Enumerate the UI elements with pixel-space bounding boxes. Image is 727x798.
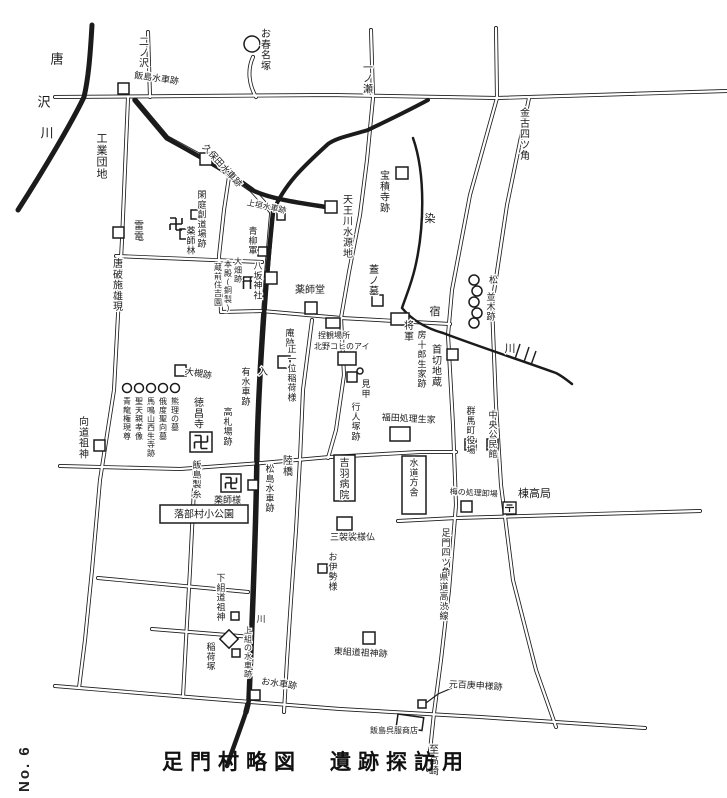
building-marker [118,83,129,94]
map-label: 薬師林 [186,225,195,255]
road-casing [428,98,497,770]
building-marker [326,318,340,328]
road-core [183,468,195,697]
map-label: 足門四ツ角 [441,528,450,577]
map-label: 一ノ瀬 [363,63,373,96]
building-marker [390,427,410,441]
road-core [55,686,645,728]
map-label: 見甲 [361,379,370,399]
road-casing [79,98,128,688]
building-marker [318,564,327,573]
building-marker [338,352,356,365]
roads-core-layer [55,28,727,770]
map-label: 宿 [430,304,441,318]
map-label: 三袈裟様仏 [330,531,375,542]
map-label: 川 [256,614,265,624]
map-label: 沢 [37,95,50,110]
building-marker [248,480,258,490]
map-label: 行人塚跡 [351,401,360,441]
map-label: 八坂神社 [253,261,262,300]
map-label: 薬師様 [214,494,241,505]
river-line [402,138,572,384]
mound-circle-marker [147,384,156,393]
map-label: 徳昌寺 [194,396,204,431]
map-label: 中央公民館 [488,409,497,459]
building-marker [231,612,239,620]
map-label: 高札場跡 [223,406,232,446]
map-label: 飯島呉服商店 [370,725,418,735]
map-label: 青龍権現尊 [123,396,131,441]
map-label: 飯島製糸 [192,459,201,499]
map-label: 馬鳴山西生寺跡 [147,397,155,458]
map-label: 大畑跡 [234,256,242,283]
bridge-tick [531,351,536,365]
mound-circle-marker [159,384,168,393]
map-label: 群馬町役場 [466,405,475,455]
map-label: 本殿(銅製) [224,259,232,312]
map-label: 川 [505,343,516,355]
map-label: 房十郎生家跡 [417,329,426,389]
map-label: 金古四ツ角 [520,106,530,162]
map-label: 東組道祖神跡 [333,645,388,659]
mound-circle-marker [123,384,132,393]
map-label: 向道祖神 [79,415,89,460]
building-marker [396,167,408,179]
road-core [219,170,230,256]
map-canvas: 唐沢川二ノ沢お春名塚飯島水車跡一ノ瀬金古四ツ角工業団地久保田水車跡宝積寺跡染天王… [0,0,727,798]
building-marker [250,690,260,700]
boxed-label-text: 水道方舎 [409,457,418,497]
map-label: 松島水車跡 [265,463,274,513]
page-number: No. 6 [16,745,33,792]
labels-layer: 唐沢川二ノ沢お春名塚飯島水車跡一ノ瀬金古四ツ角工業団地久保田水車跡宝積寺跡染天王… [37,28,551,778]
mound-circle-marker [472,308,482,318]
building-marker [305,302,317,314]
mound-circle-marker [357,368,363,374]
building-marker [418,700,426,708]
mound-circle-marker [469,297,479,307]
shrine-diamond-marker [220,630,238,648]
map-label: 蔵前住吉園 [214,262,222,307]
map-label: 正一位稲荷様 [287,344,296,403]
map-label: 宝積寺跡 [380,169,390,214]
map-label: 飯島水車跡 [134,69,180,86]
map-label: 天王川水源地 [343,195,353,260]
map-label: 大槻跡 [184,365,213,381]
road-core [262,311,341,318]
building-marker [337,517,352,530]
mound-circle-marker [472,286,482,296]
mound-circle-marker [469,318,479,328]
map-label: 首切地蔵 [432,343,442,388]
map-label: 川 [40,126,53,141]
map-label: 捏観場所 [318,330,350,340]
roads-casing-layer [55,28,727,770]
building-marker [363,632,375,644]
scanned-map-page: 唐沢川二ノ沢お春名塚飯島水車跡一ノ瀬金古四ツ角工業団地久保田水車跡宝積寺跡染天王… [0,0,727,798]
river-line [135,100,326,207]
mound-circle-marker [135,384,144,393]
map-label: 入 [258,367,268,378]
map-label: 棟高局 [518,486,551,500]
map-label: 陸橋 [283,454,293,478]
mound-circle-marker [171,384,180,393]
map-label: 稲荷塚 [206,641,215,671]
bridge-tick [524,347,529,362]
map-label: 上組の水車跡 [244,626,252,678]
map-label: 雷電 [134,220,144,243]
building-marker [325,201,337,213]
map-label: 工業団地 [97,133,108,181]
map-label: 福田処理生家 [381,411,436,425]
road-core [152,629,252,637]
building-marker [461,501,472,512]
map-label: お水車跡 [261,675,298,691]
road-core [79,98,128,688]
mound-circle-marker [469,275,479,285]
building-marker [447,349,458,360]
map-label: 唐破施雄現 [113,257,123,313]
building-marker [113,227,124,238]
map-label: 薬師堂 [295,283,325,296]
map-label: 有水車跡 [241,366,250,406]
building-marker [347,372,357,382]
map-label: 将軍 [404,320,414,343]
boxed-label-text: 吉羽病院 [340,457,350,501]
road-core [496,28,497,98]
map-label: 唐 [50,52,63,67]
map-label: 閑庭創道場跡 [197,190,206,249]
map-label: 二ノ沢 [139,37,149,70]
map-label: 俄度聖向墓 [159,396,167,441]
map-title: 足門村略図 遺跡探訪用 [162,746,470,776]
building-marker [232,649,240,657]
map-label: 松 [489,274,498,285]
map-label: 元百庚申様跡 [448,678,503,692]
building-marker [94,440,105,451]
manji-temple-icon [170,218,182,230]
boxed-label-text: 落部村小公園 [174,508,234,521]
map-label: 青柳軍 [248,225,257,255]
building-marker [265,272,277,284]
road-casing [492,98,556,727]
map-label: 蓋ノ墓 [369,264,379,298]
map-label: 聖天親孝像 [135,397,143,441]
map-label: 熊理の墓 [171,396,179,432]
mound-circle-marker [244,36,260,52]
map-label: 並木跡 [486,291,495,321]
road-core [492,98,556,727]
building-marker [258,247,267,256]
map-label: 北野コヒのアイ [314,342,370,351]
map-label: お春名塚 [261,28,271,72]
map-label: 染 [425,211,436,225]
map-label: お伊勢様 [328,552,337,591]
bridge-tick [515,344,520,359]
torii-gate-icon [240,277,254,289]
map-label: 県道高渋線 [439,572,448,621]
map-label: 下組道祖神 [216,573,225,622]
road-core [398,511,700,521]
